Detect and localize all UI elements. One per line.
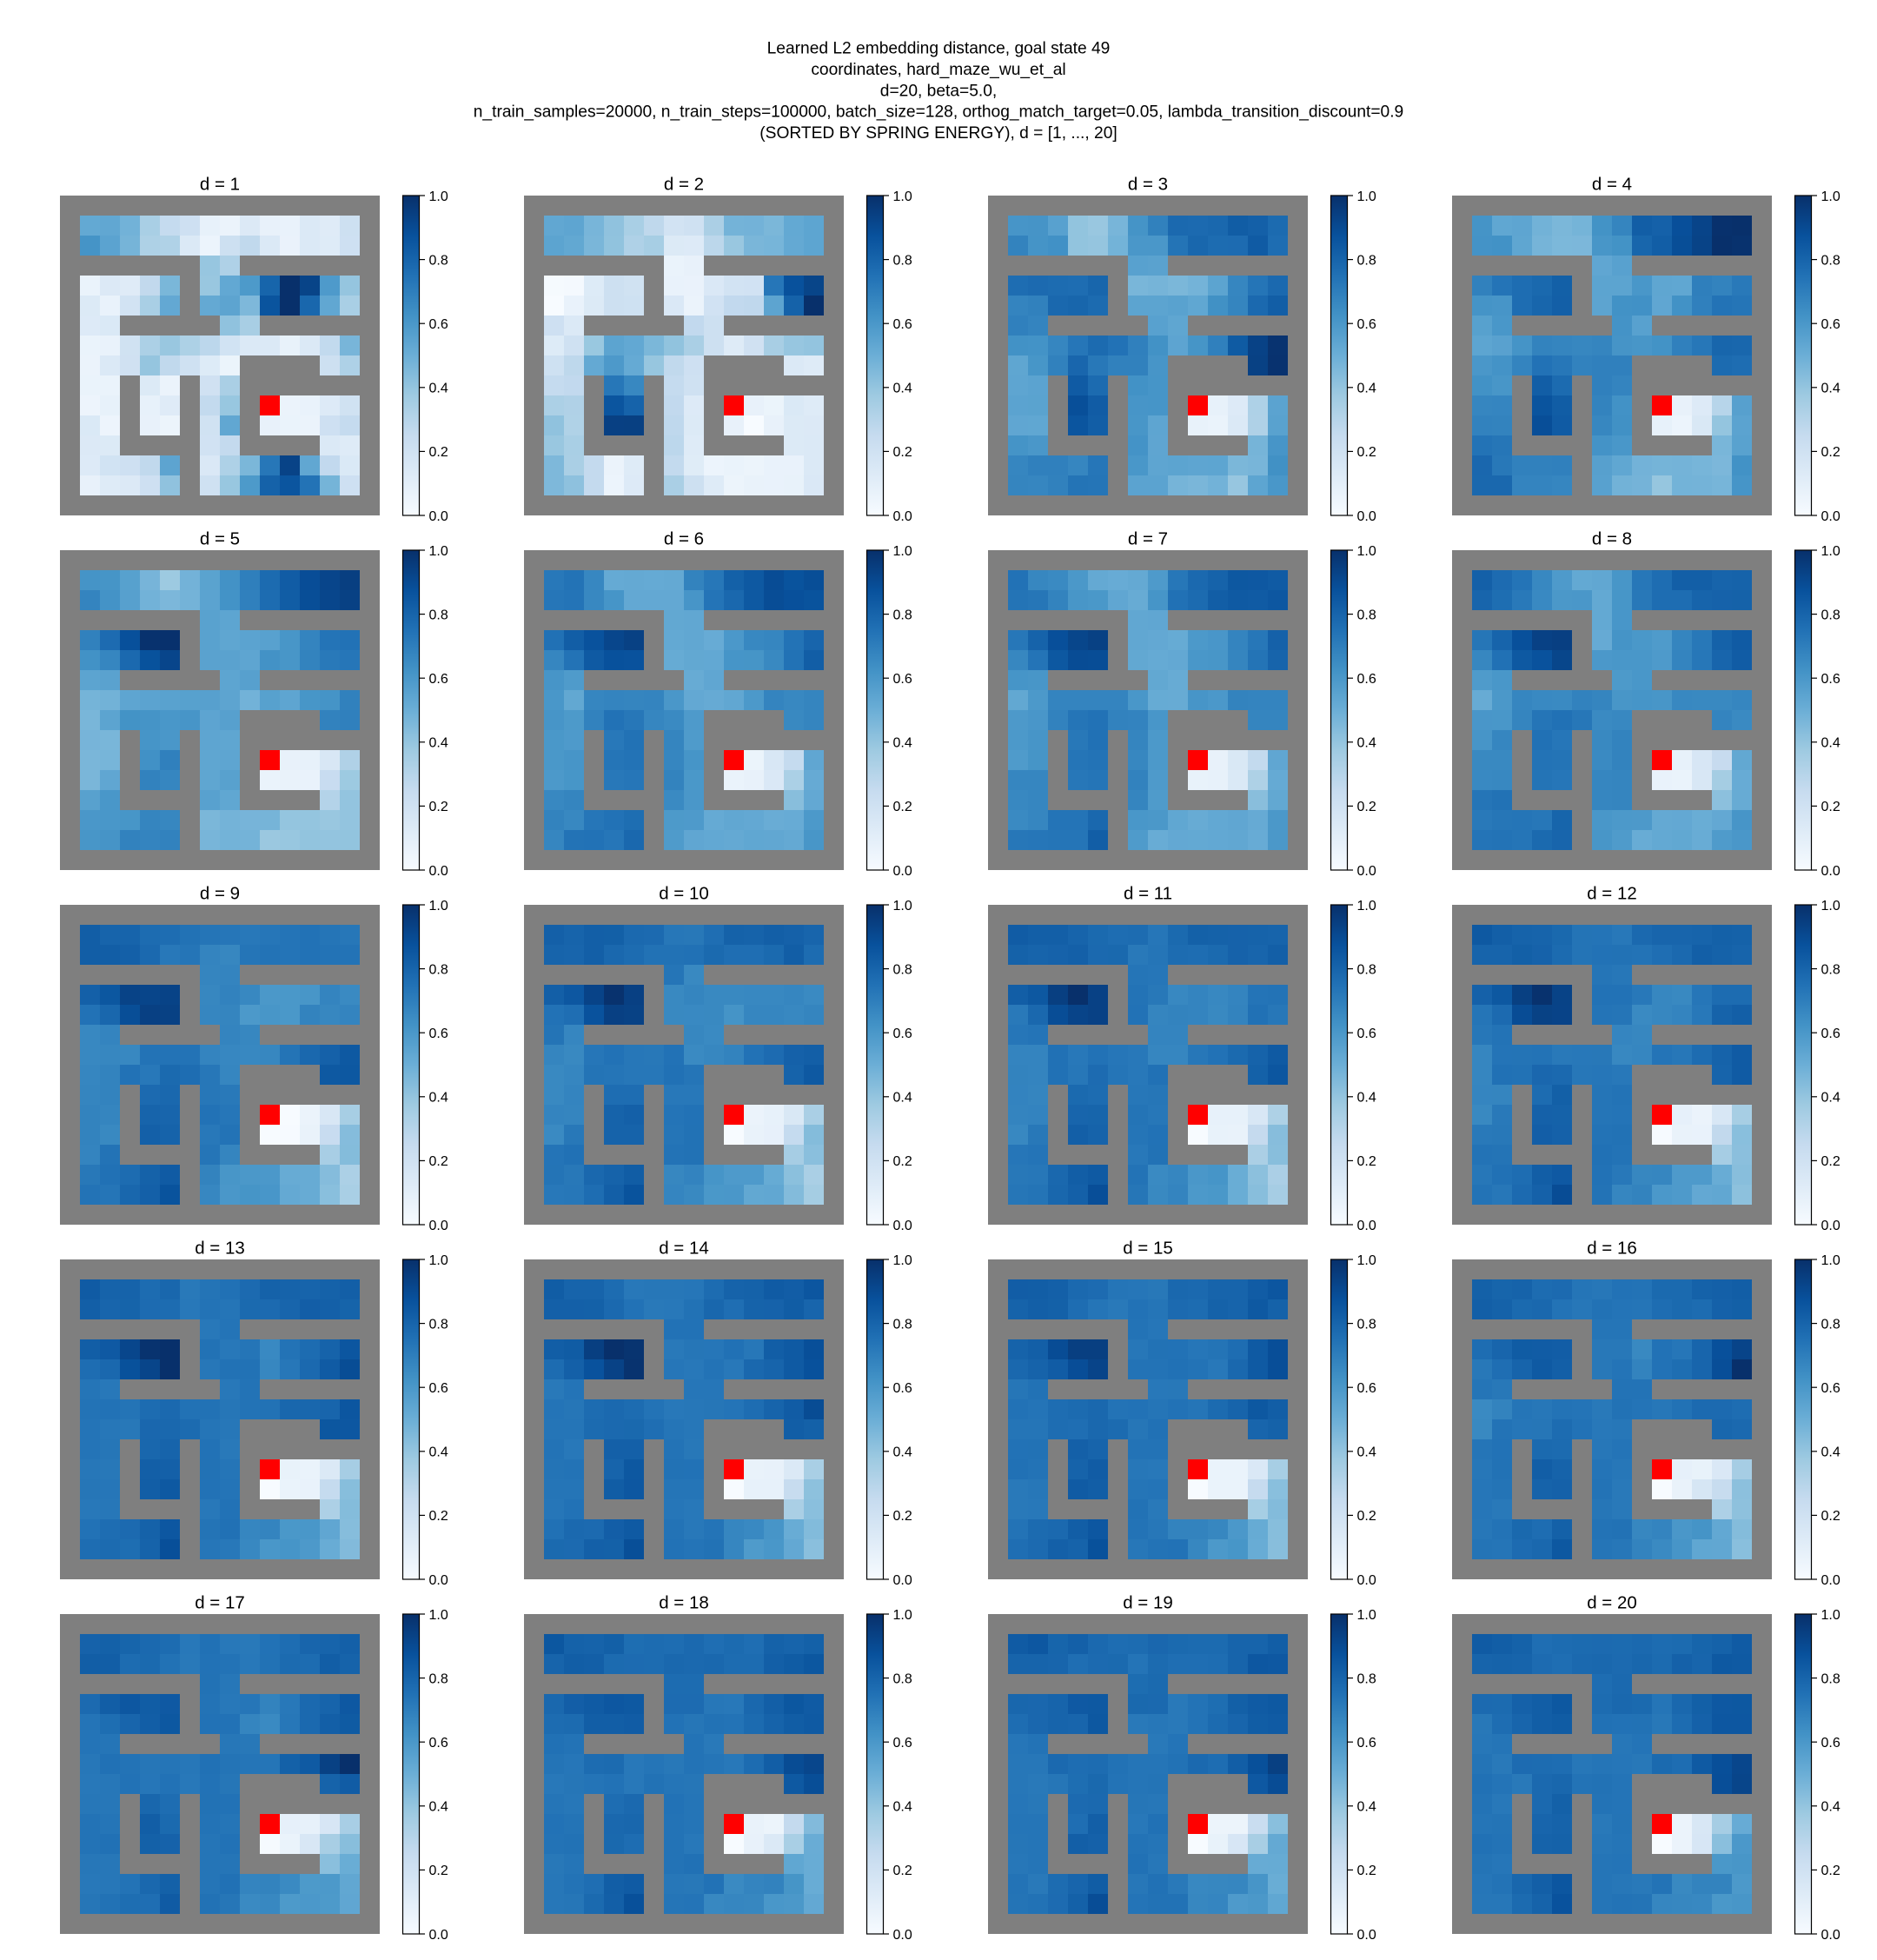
svg-text:0.6: 0.6	[429, 1381, 448, 1396]
svg-text:d = 14: d = 14	[659, 1239, 709, 1259]
svg-text:0.4: 0.4	[1357, 382, 1376, 396]
svg-text:0.2: 0.2	[1357, 1154, 1376, 1169]
svg-text:0.2: 0.2	[893, 1154, 912, 1169]
svg-text:0.6: 0.6	[1821, 317, 1841, 332]
svg-text:1.0: 1.0	[1821, 544, 1841, 559]
svg-text:0.6: 0.6	[1821, 672, 1841, 687]
svg-text:0.8: 0.8	[1821, 608, 1841, 622]
svg-text:0.8: 0.8	[1357, 962, 1376, 977]
svg-text:0.4: 0.4	[1821, 1800, 1841, 1815]
svg-text:0.0: 0.0	[1357, 509, 1376, 524]
svg-text:1.0: 1.0	[1357, 544, 1376, 559]
svg-text:0.8: 0.8	[429, 253, 448, 268]
svg-text:0.2: 0.2	[893, 1864, 912, 1878]
svg-text:d = 7: d = 7	[1128, 529, 1168, 549]
svg-text:0.6: 0.6	[429, 672, 448, 687]
svg-text:1.0: 1.0	[893, 189, 912, 204]
svg-text:0.0: 0.0	[1357, 864, 1376, 879]
svg-text:0.4: 0.4	[429, 382, 448, 396]
svg-text:0.6: 0.6	[893, 672, 912, 687]
svg-text:d = 13: d = 13	[195, 1239, 245, 1259]
svg-text:0.8: 0.8	[893, 253, 912, 268]
svg-text:1.0: 1.0	[893, 1608, 912, 1623]
svg-text:d = 6: d = 6	[664, 529, 704, 549]
svg-text:0.0: 0.0	[1821, 1573, 1841, 1588]
svg-text:0.8: 0.8	[1821, 253, 1841, 268]
svg-text:d = 1: d = 1	[200, 175, 240, 195]
svg-text:d = 12: d = 12	[1587, 884, 1637, 904]
svg-text:d = 5: d = 5	[200, 529, 240, 549]
svg-text:0.6: 0.6	[893, 317, 912, 332]
svg-text:0.2: 0.2	[1821, 1864, 1841, 1878]
svg-text:0.0: 0.0	[429, 1573, 448, 1588]
svg-text:0.6: 0.6	[893, 1027, 912, 1041]
svg-text:0.0: 0.0	[893, 509, 912, 524]
svg-text:0.6: 0.6	[1357, 1381, 1376, 1396]
svg-text:d = 15: d = 15	[1123, 1239, 1173, 1259]
svg-text:d = 19: d = 19	[1123, 1593, 1173, 1613]
svg-text:d = 11: d = 11	[1124, 884, 1172, 904]
svg-text:0.2: 0.2	[429, 1509, 448, 1524]
svg-text:d = 3: d = 3	[1128, 175, 1168, 195]
svg-text:0.2: 0.2	[1821, 1509, 1841, 1524]
svg-text:0.2: 0.2	[1357, 800, 1376, 814]
svg-text:0.2: 0.2	[893, 800, 912, 814]
svg-text:1.0: 1.0	[1357, 1253, 1376, 1268]
svg-text:0.0: 0.0	[429, 509, 448, 524]
svg-text:0.4: 0.4	[1357, 1091, 1376, 1106]
svg-text:0.4: 0.4	[893, 1800, 912, 1815]
svg-text:d = 8: d = 8	[1592, 529, 1632, 549]
svg-text:0.2: 0.2	[1821, 1154, 1841, 1169]
svg-text:0.0: 0.0	[1821, 864, 1841, 879]
svg-text:1.0: 1.0	[429, 1253, 448, 1268]
svg-text:1.0: 1.0	[1357, 189, 1376, 204]
svg-text:0.8: 0.8	[1357, 608, 1376, 622]
svg-text:0.0: 0.0	[893, 1928, 912, 1943]
svg-text:0.4: 0.4	[1357, 1800, 1376, 1815]
svg-text:0.4: 0.4	[893, 1091, 912, 1106]
svg-text:1.0: 1.0	[429, 1608, 448, 1623]
svg-text:1.0: 1.0	[429, 189, 448, 204]
svg-text:0.2: 0.2	[1357, 445, 1376, 460]
svg-text:1.0: 1.0	[893, 544, 912, 559]
svg-text:0.2: 0.2	[429, 1864, 448, 1878]
svg-text:0.0: 0.0	[429, 864, 448, 879]
svg-text:d=20, beta=5.0,: d=20, beta=5.0,	[880, 82, 997, 100]
svg-text:0.0: 0.0	[893, 864, 912, 879]
svg-text:0.6: 0.6	[1357, 672, 1376, 687]
svg-text:0.0: 0.0	[1357, 1573, 1376, 1588]
svg-text:1.0: 1.0	[1821, 899, 1841, 914]
svg-text:0.0: 0.0	[893, 1573, 912, 1588]
svg-text:0.6: 0.6	[1357, 317, 1376, 332]
svg-text:0.0: 0.0	[1357, 1928, 1376, 1943]
svg-text:0.6: 0.6	[429, 1027, 448, 1041]
svg-text:d = 17: d = 17	[195, 1593, 245, 1613]
svg-text:1.0: 1.0	[429, 544, 448, 559]
svg-text:0.4: 0.4	[1357, 736, 1376, 751]
svg-text:0.6: 0.6	[1821, 1381, 1841, 1396]
svg-text:1.0: 1.0	[429, 899, 448, 914]
svg-text:0.4: 0.4	[1821, 1445, 1841, 1460]
svg-text:0.2: 0.2	[1357, 1509, 1376, 1524]
svg-text:0.4: 0.4	[429, 1091, 448, 1106]
svg-text:0.8: 0.8	[893, 1671, 912, 1686]
svg-text:n_train_samples=20000, n_train: n_train_samples=20000, n_train_steps=100…	[474, 103, 1403, 122]
svg-text:0.2: 0.2	[1357, 1864, 1376, 1878]
svg-text:d = 20: d = 20	[1587, 1593, 1637, 1613]
svg-text:0.0: 0.0	[1821, 509, 1841, 524]
svg-text:1.0: 1.0	[1357, 899, 1376, 914]
svg-text:0.0: 0.0	[893, 1219, 912, 1233]
svg-text:0.8: 0.8	[1821, 962, 1841, 977]
svg-text:0.6: 0.6	[893, 1381, 912, 1396]
svg-text:d = 18: d = 18	[659, 1593, 709, 1613]
svg-text:0.4: 0.4	[893, 382, 912, 396]
svg-text:0.2: 0.2	[429, 1154, 448, 1169]
svg-text:0.8: 0.8	[429, 608, 448, 622]
svg-text:0.6: 0.6	[1821, 1736, 1841, 1751]
svg-text:0.0: 0.0	[1821, 1219, 1841, 1233]
svg-text:0.4: 0.4	[1821, 736, 1841, 751]
svg-text:0.4: 0.4	[1821, 382, 1841, 396]
svg-text:1.0: 1.0	[1821, 1253, 1841, 1268]
svg-text:0.6: 0.6	[1821, 1027, 1841, 1041]
svg-text:0.2: 0.2	[429, 800, 448, 814]
svg-text:d = 4: d = 4	[1592, 175, 1632, 195]
svg-text:0.4: 0.4	[893, 1445, 912, 1460]
svg-text:0.4: 0.4	[1357, 1445, 1376, 1460]
svg-text:coordinates, hard_maze_wu_et_a: coordinates, hard_maze_wu_et_al	[811, 61, 1065, 79]
svg-text:0.4: 0.4	[1821, 1091, 1841, 1106]
svg-text:0.8: 0.8	[1821, 1317, 1841, 1332]
svg-text:d = 16: d = 16	[1587, 1239, 1637, 1259]
svg-text:0.4: 0.4	[429, 736, 448, 751]
svg-text:0.2: 0.2	[429, 445, 448, 460]
svg-text:1.0: 1.0	[1357, 1608, 1376, 1623]
svg-text:0.4: 0.4	[429, 1800, 448, 1815]
svg-text:1.0: 1.0	[893, 1253, 912, 1268]
svg-text:0.8: 0.8	[1357, 1317, 1376, 1332]
svg-text:1.0: 1.0	[1821, 1608, 1841, 1623]
svg-text:0.8: 0.8	[429, 1671, 448, 1686]
svg-text:0.8: 0.8	[429, 962, 448, 977]
svg-text:Learned L2 embedding distance,: Learned L2 embedding distance, goal stat…	[767, 40, 1111, 58]
svg-text:0.6: 0.6	[429, 1736, 448, 1751]
svg-text:d = 10: d = 10	[659, 884, 709, 904]
svg-text:0.4: 0.4	[429, 1445, 448, 1460]
svg-text:0.0: 0.0	[429, 1219, 448, 1233]
svg-text:(SORTED BY SPRING ENERGY), d =: (SORTED BY SPRING ENERGY), d = [1, ..., …	[759, 124, 1117, 143]
svg-text:0.4: 0.4	[893, 736, 912, 751]
svg-text:0.8: 0.8	[429, 1317, 448, 1332]
svg-text:1.0: 1.0	[893, 899, 912, 914]
svg-text:0.8: 0.8	[893, 1317, 912, 1332]
svg-text:0.2: 0.2	[893, 445, 912, 460]
svg-text:d = 2: d = 2	[664, 175, 704, 195]
svg-text:0.2: 0.2	[1821, 800, 1841, 814]
svg-text:0.6: 0.6	[893, 1736, 912, 1751]
svg-text:0.6: 0.6	[429, 317, 448, 332]
svg-text:0.6: 0.6	[1357, 1736, 1376, 1751]
svg-text:1.0: 1.0	[1821, 189, 1841, 204]
svg-text:0.6: 0.6	[1357, 1027, 1376, 1041]
svg-text:0.0: 0.0	[1821, 1928, 1841, 1943]
svg-text:0.0: 0.0	[1357, 1219, 1376, 1233]
svg-text:0.8: 0.8	[893, 608, 912, 622]
svg-text:0.0: 0.0	[429, 1928, 448, 1943]
svg-text:0.2: 0.2	[1821, 445, 1841, 460]
svg-text:0.2: 0.2	[893, 1509, 912, 1524]
svg-text:0.8: 0.8	[1821, 1671, 1841, 1686]
svg-text:d = 9: d = 9	[200, 884, 240, 904]
svg-text:0.8: 0.8	[1357, 253, 1376, 268]
svg-text:0.8: 0.8	[1357, 1671, 1376, 1686]
svg-text:0.8: 0.8	[893, 962, 912, 977]
